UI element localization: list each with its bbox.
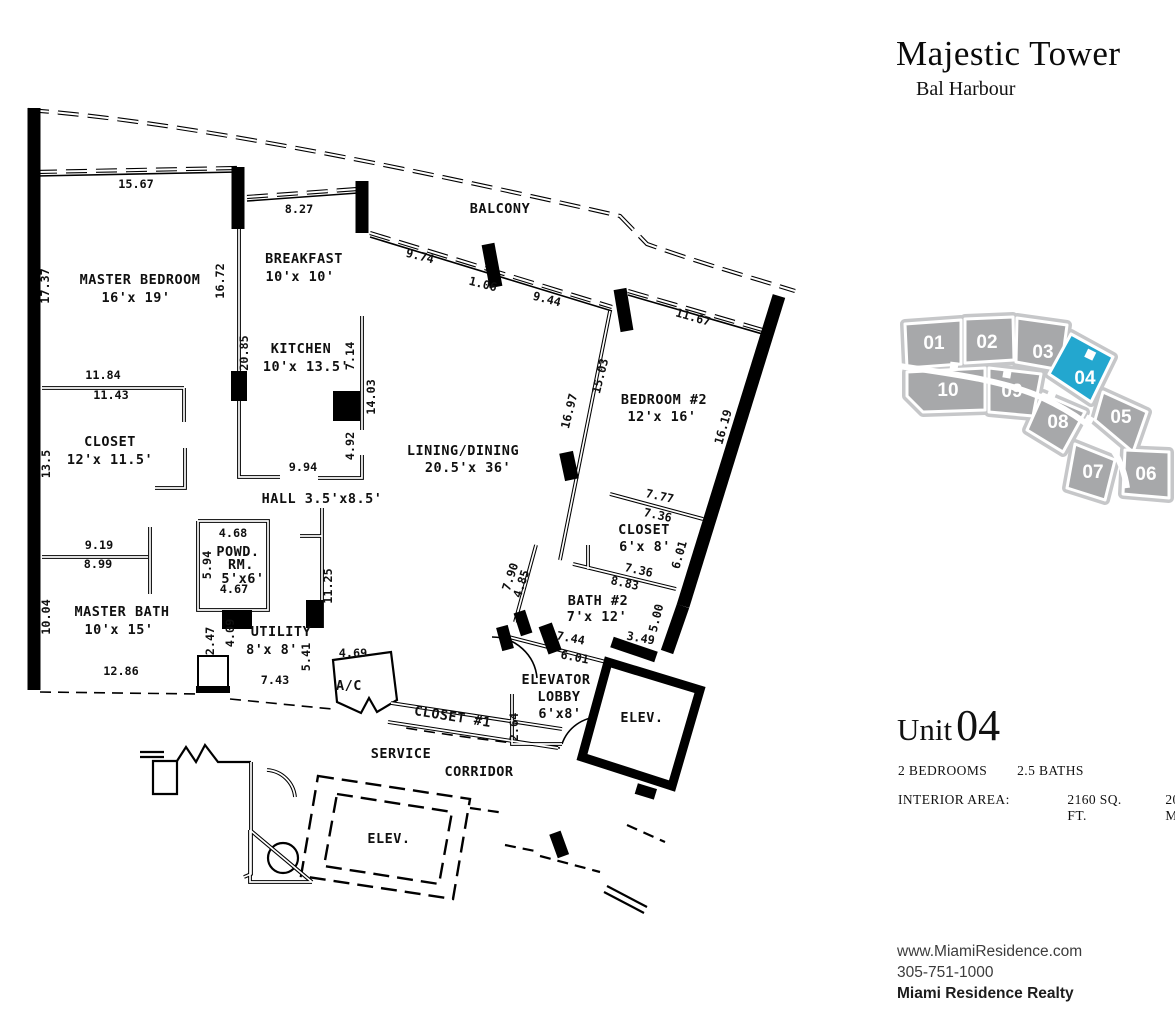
interior-area-sqm: 200.7 M² bbox=[1165, 792, 1175, 824]
dim-label: 4.69 bbox=[339, 646, 367, 660]
keyplan-unit-number-06: 06 bbox=[1135, 464, 1156, 485]
unit-facts: 2 BEDROOMS2.5 BATHS INTERIOR AREA: 2160 … bbox=[898, 763, 1175, 824]
dim-label: 6.01 bbox=[669, 539, 690, 570]
dim-label: 9.94 bbox=[289, 460, 317, 474]
room-label: CORRIDOR bbox=[444, 764, 513, 780]
flyer-page: MASTER BEDROOM16'x 19'BREAKFAST10'x 10'K… bbox=[0, 0, 1175, 1020]
utility-equipment bbox=[196, 656, 230, 693]
dim-label: 9.74 bbox=[404, 246, 435, 266]
dim-label: 7.44 bbox=[555, 628, 586, 647]
room-label: BREAKFAST bbox=[265, 251, 343, 267]
dim-label: 15.67 bbox=[118, 177, 154, 191]
dim-label: 5.00 bbox=[646, 603, 666, 634]
dim-label: 7.43 bbox=[261, 673, 289, 687]
unit-prefix: Unit bbox=[897, 712, 952, 747]
phone-number: 305-751-1000 bbox=[897, 962, 1082, 983]
keyplan-unit-number-07: 07 bbox=[1082, 462, 1103, 483]
dim-label: 2.47 bbox=[203, 627, 217, 655]
room-label: 12'x 11.5' bbox=[67, 452, 153, 468]
dim-label: 14.03 bbox=[364, 379, 378, 415]
floorplan-drawing: MASTER BEDROOM16'x 19'BREAKFAST10'x 10'K… bbox=[0, 0, 870, 1020]
dim-label: 4.68 bbox=[219, 526, 247, 540]
company-name: Miami Residence Realty bbox=[897, 983, 1082, 1004]
dim-label: 4.67 bbox=[220, 582, 248, 596]
room-label: BALCONY bbox=[470, 201, 531, 217]
bedrooms-value: 2 BEDROOMS bbox=[898, 763, 987, 778]
room-label: 6'x8' bbox=[538, 706, 581, 722]
dim-label: 11.84 bbox=[85, 368, 121, 382]
keyplan-unit-number-02: 02 bbox=[976, 332, 997, 353]
room-label: 16'x 19' bbox=[101, 290, 170, 306]
dim-label: 6.01 bbox=[559, 647, 590, 666]
room-label: 12'x 16' bbox=[627, 409, 696, 425]
room-label: CLOSET bbox=[618, 522, 670, 538]
room-label: ELEVATOR bbox=[521, 672, 590, 688]
baths-value: 2.5 BATHS bbox=[1017, 763, 1084, 778]
dim-label: 8.99 bbox=[84, 557, 112, 571]
keyplan-unit-number-10: 10 bbox=[937, 380, 958, 401]
room-label: SERVICE bbox=[371, 746, 431, 762]
dim-label: 7.14 bbox=[343, 342, 357, 370]
room-label: BATH #2 bbox=[568, 593, 628, 609]
contact-block: www.MiamiResidence.com 305-751-1000 Miam… bbox=[897, 941, 1082, 1004]
room-label: 10'x 13.5' bbox=[263, 359, 349, 375]
dim-label: 11.25 bbox=[321, 568, 335, 604]
keyplan-unit-number-01: 01 bbox=[923, 333, 945, 354]
dim-label: 4.92 bbox=[343, 432, 357, 460]
room-label: ELEV. bbox=[367, 831, 410, 847]
dim-label: 16.72 bbox=[213, 263, 227, 299]
room-label: MASTER BATH bbox=[75, 604, 170, 620]
unit-heading: Unit 04 bbox=[897, 700, 1000, 751]
interior-area-label: INTERIOR AREA: bbox=[898, 792, 1029, 824]
keyplan-unit-number-08: 08 bbox=[1047, 412, 1068, 433]
room-label: ELEV. bbox=[620, 710, 663, 726]
dim-label: 4.09 bbox=[223, 619, 237, 647]
interior-area-sqft: 2160 SQ. FT. bbox=[1067, 792, 1143, 824]
room-label: HALL 3.5'x8.5' bbox=[262, 491, 383, 507]
dim-label: 15.03 bbox=[589, 357, 611, 395]
dim-label: 16.97 bbox=[558, 392, 580, 430]
keyplan-unit-number-03: 03 bbox=[1032, 342, 1053, 363]
room-label: BEDROOM #2 bbox=[621, 392, 707, 408]
dim-label: 9.19 bbox=[85, 538, 113, 552]
keyplan-unit-number-05: 05 bbox=[1110, 407, 1132, 428]
dim-label: 5.94 bbox=[200, 551, 214, 579]
keyplan-unit-number-09: 09 bbox=[1001, 381, 1022, 402]
website-link[interactable]: www.MiamiResidence.com bbox=[897, 941, 1082, 962]
dim-label: 2.64 bbox=[507, 713, 521, 741]
dim-label: 12.86 bbox=[103, 664, 139, 678]
room-label: LOBBY bbox=[537, 689, 581, 705]
room-label: LINING/DINING bbox=[407, 443, 519, 459]
room-label: CLOSET bbox=[84, 434, 136, 450]
unit-number: 04 bbox=[956, 701, 1000, 750]
room-label: 6'x 8' bbox=[619, 539, 671, 555]
room-label: 10'x 10' bbox=[265, 269, 334, 285]
dim-label: 5.41 bbox=[299, 643, 313, 671]
room-label: 8'x 8' bbox=[246, 642, 298, 658]
building-subtitle: Bal Harbour bbox=[916, 78, 1015, 101]
room-label: 10'x 15' bbox=[84, 622, 153, 638]
keyplan-unit-number-04: 04 bbox=[1074, 368, 1096, 389]
dim-label: 10.04 bbox=[39, 599, 53, 635]
room-label: 7'x 12' bbox=[567, 609, 627, 625]
dim-label: 20.85 bbox=[237, 335, 251, 371]
dim-label: 11.67 bbox=[674, 306, 712, 329]
room-label: 20.5'x 36' bbox=[425, 460, 511, 476]
room-label: MASTER BEDROOM bbox=[80, 272, 201, 288]
room-label: UTILITY bbox=[251, 624, 312, 640]
dim-label: 11.43 bbox=[93, 388, 129, 402]
dim-label: 17.37 bbox=[38, 268, 52, 304]
building-title: Majestic Tower bbox=[896, 34, 1121, 74]
dim-label: 8.27 bbox=[285, 202, 313, 216]
keyplan-map[interactable]: 01020304050607080910 bbox=[893, 300, 1175, 518]
room-label: KITCHEN bbox=[271, 341, 331, 357]
dim-label: 13.5 bbox=[39, 450, 53, 478]
room-label: A/C bbox=[336, 678, 362, 694]
